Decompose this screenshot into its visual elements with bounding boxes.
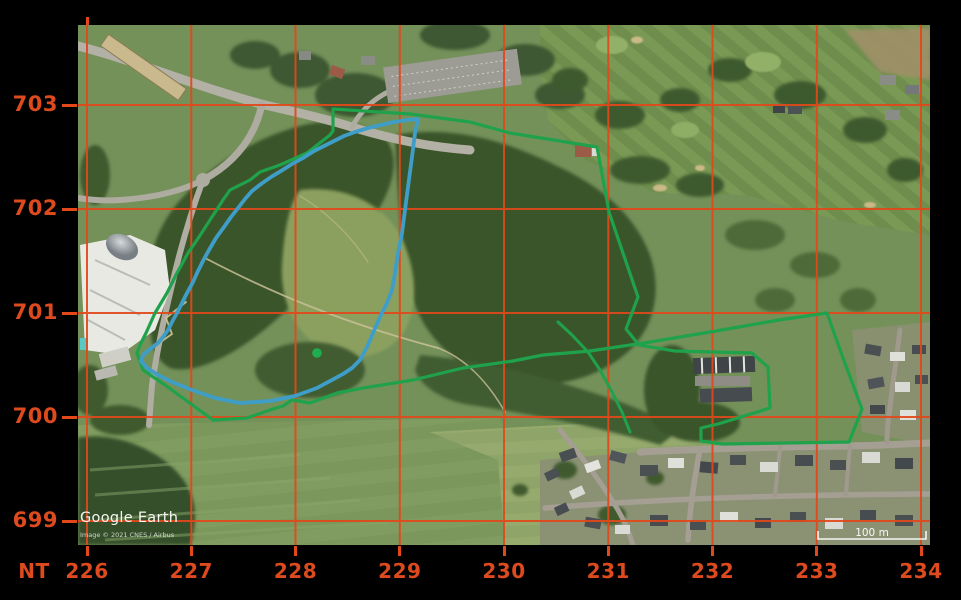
easting-label-227: 227 bbox=[161, 560, 221, 583]
easting-label-234: 234 bbox=[891, 560, 951, 583]
tick-bottom-231 bbox=[607, 546, 610, 556]
copyright-text: Image © 2021 CNES / Airbus bbox=[80, 531, 175, 539]
satellite-map-viewport[interactable]: 100 m Google Earth Image © 2021 CNES / A… bbox=[78, 25, 930, 545]
scale-bar-label: 100 m bbox=[855, 527, 889, 539]
northing-label-701: 701 bbox=[2, 301, 58, 324]
northing-label-700: 700 bbox=[2, 405, 58, 428]
tick-left-699 bbox=[62, 520, 77, 523]
easting-label-228: 228 bbox=[266, 560, 326, 583]
attribution: Google Earth Image © 2021 CNES / Airbus bbox=[80, 510, 178, 539]
easting-label-230: 230 bbox=[474, 560, 534, 583]
tick-left-700 bbox=[62, 416, 77, 419]
easting-label-233: 233 bbox=[787, 560, 847, 583]
satellite-map[interactable]: 100 m Google Earth Image © 2021 CNES / A… bbox=[78, 25, 930, 545]
tick-left-703 bbox=[62, 104, 77, 107]
tick-top-226 bbox=[86, 17, 89, 25]
northing-label-702: 702 bbox=[2, 197, 58, 220]
easting-label-231: 231 bbox=[578, 560, 638, 583]
tick-left-702 bbox=[62, 208, 77, 211]
easting-label-226: 226 bbox=[57, 560, 117, 583]
tick-bottom-233 bbox=[815, 546, 818, 556]
tick-bottom-227 bbox=[190, 546, 193, 556]
google-earth-canvas: 100 m Google Earth Image © 2021 CNES / A… bbox=[0, 0, 961, 600]
easting-label-229: 229 bbox=[370, 560, 430, 583]
tick-bottom-228 bbox=[294, 546, 297, 556]
tick-bottom-232 bbox=[711, 546, 714, 556]
tick-bottom-230 bbox=[503, 546, 506, 556]
site-marker-dot[interactable] bbox=[312, 348, 322, 358]
google-earth-logo: Google Earth bbox=[80, 510, 178, 526]
tick-left-701 bbox=[62, 312, 77, 315]
northing-label-703: 703 bbox=[2, 93, 58, 116]
northing-label-699: 699 bbox=[2, 509, 58, 532]
tick-bottom-226 bbox=[86, 546, 89, 556]
easting-label-232: 232 bbox=[683, 560, 743, 583]
grid-zone-label: NT bbox=[12, 560, 56, 583]
tick-bottom-234 bbox=[920, 546, 923, 556]
tick-bottom-229 bbox=[398, 546, 401, 556]
